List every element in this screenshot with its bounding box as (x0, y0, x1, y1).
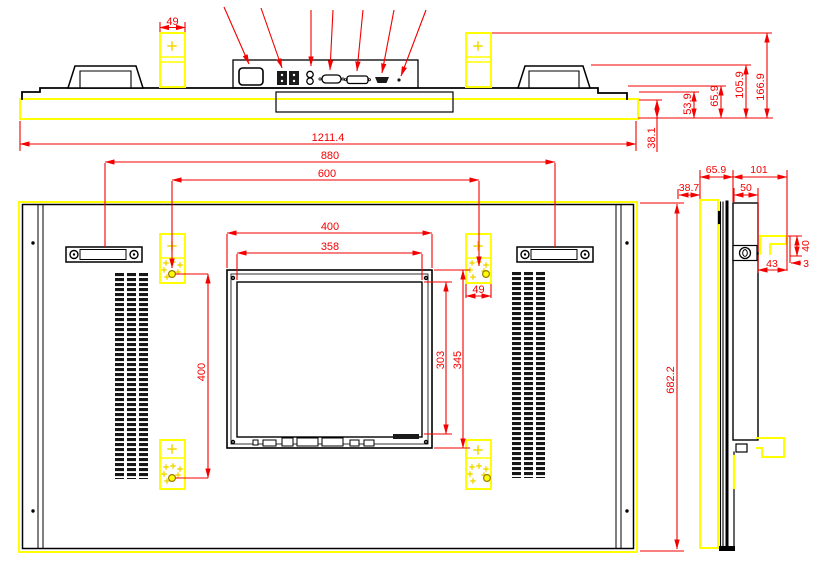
wall-hook-top (760, 236, 786, 254)
indicator-dot-icon (397, 78, 400, 81)
side-handle-boss (733, 246, 757, 261)
dim-vesa-horizontal: 600 (318, 168, 336, 180)
dim-bezel-depth: 38.1 (646, 127, 658, 148)
display-label-bar (393, 434, 419, 439)
dim-step-depth: 53.9 (682, 93, 694, 114)
vesa-hole (483, 271, 490, 278)
handle-plate-right (517, 247, 593, 262)
top-front-bezel (20, 99, 638, 119)
power-inlet-icon (239, 68, 263, 85)
dim-rail-width: 50 (740, 182, 752, 194)
dim-hook-width: 43 (766, 258, 778, 270)
embedded-display (227, 270, 432, 448)
dim-display-width: 358 (321, 241, 339, 253)
vesa-hole (169, 271, 176, 278)
side-notch (736, 444, 747, 452)
vga-port-icon (319, 75, 344, 83)
dim-cutout-height: 345 (452, 351, 464, 369)
dim-panel-depth: 65.9 (709, 85, 721, 106)
dim-cutout-width: 400 (321, 221, 339, 233)
vesa-bracket-bottom-right (466, 440, 491, 489)
dim-mount-depth: 166.9 (755, 73, 767, 101)
rear-view (19, 202, 637, 552)
dim-hook-gap: 3 (803, 258, 809, 270)
top-handle-right (518, 66, 590, 88)
top-handle-left (68, 66, 143, 88)
dim-top-bracket-width: 49 (166, 16, 178, 28)
dim-handle-pitch: 880 (321, 150, 339, 162)
side-view (700, 200, 786, 551)
side-front-bezel (700, 200, 718, 548)
vesa-bracket-bottom-left (160, 440, 185, 489)
dvi-port-icon (345, 76, 371, 84)
side-bottom-foot (719, 546, 735, 551)
monitor-outline-drawing: 49 1211.4 38.1 53.9 65.9 105.9 166.9 880… (0, 0, 818, 567)
dim-vesa-vertical: 400 (196, 363, 208, 381)
handle-plate-left (66, 247, 142, 262)
side-mount-rail (733, 203, 758, 440)
dim-rear-bracket-width: 49 (472, 284, 484, 296)
dim-overall-width: 1211.4 (312, 132, 345, 144)
dim-side-mount-depth: 101 (750, 164, 768, 176)
dim-front-depth: 38.7 (679, 182, 700, 194)
side-panel-sheets (721, 202, 724, 547)
dim-hook-height: 40 (800, 240, 812, 252)
vesa-hole (169, 475, 176, 482)
technical-drawing-page: 49 1211.4 38.1 53.9 65.9 105.9 166.9 880… (0, 0, 818, 567)
vent-grille-right (512, 272, 545, 478)
dim-display-height: 303 (435, 351, 447, 369)
vesa-hole (484, 475, 491, 482)
top-view (20, 33, 638, 119)
top-mount-bracket-right (466, 33, 491, 87)
dim-body-depth: 65.9 (706, 164, 727, 176)
vent-grille-left (115, 273, 148, 479)
top-panel-outline (22, 88, 627, 99)
dim-overall-height: 682.2 (665, 366, 677, 394)
top-mount-bracket-left (160, 33, 185, 87)
wall-hook-bottom (757, 438, 784, 457)
dim-handle-depth: 105.9 (734, 71, 746, 99)
